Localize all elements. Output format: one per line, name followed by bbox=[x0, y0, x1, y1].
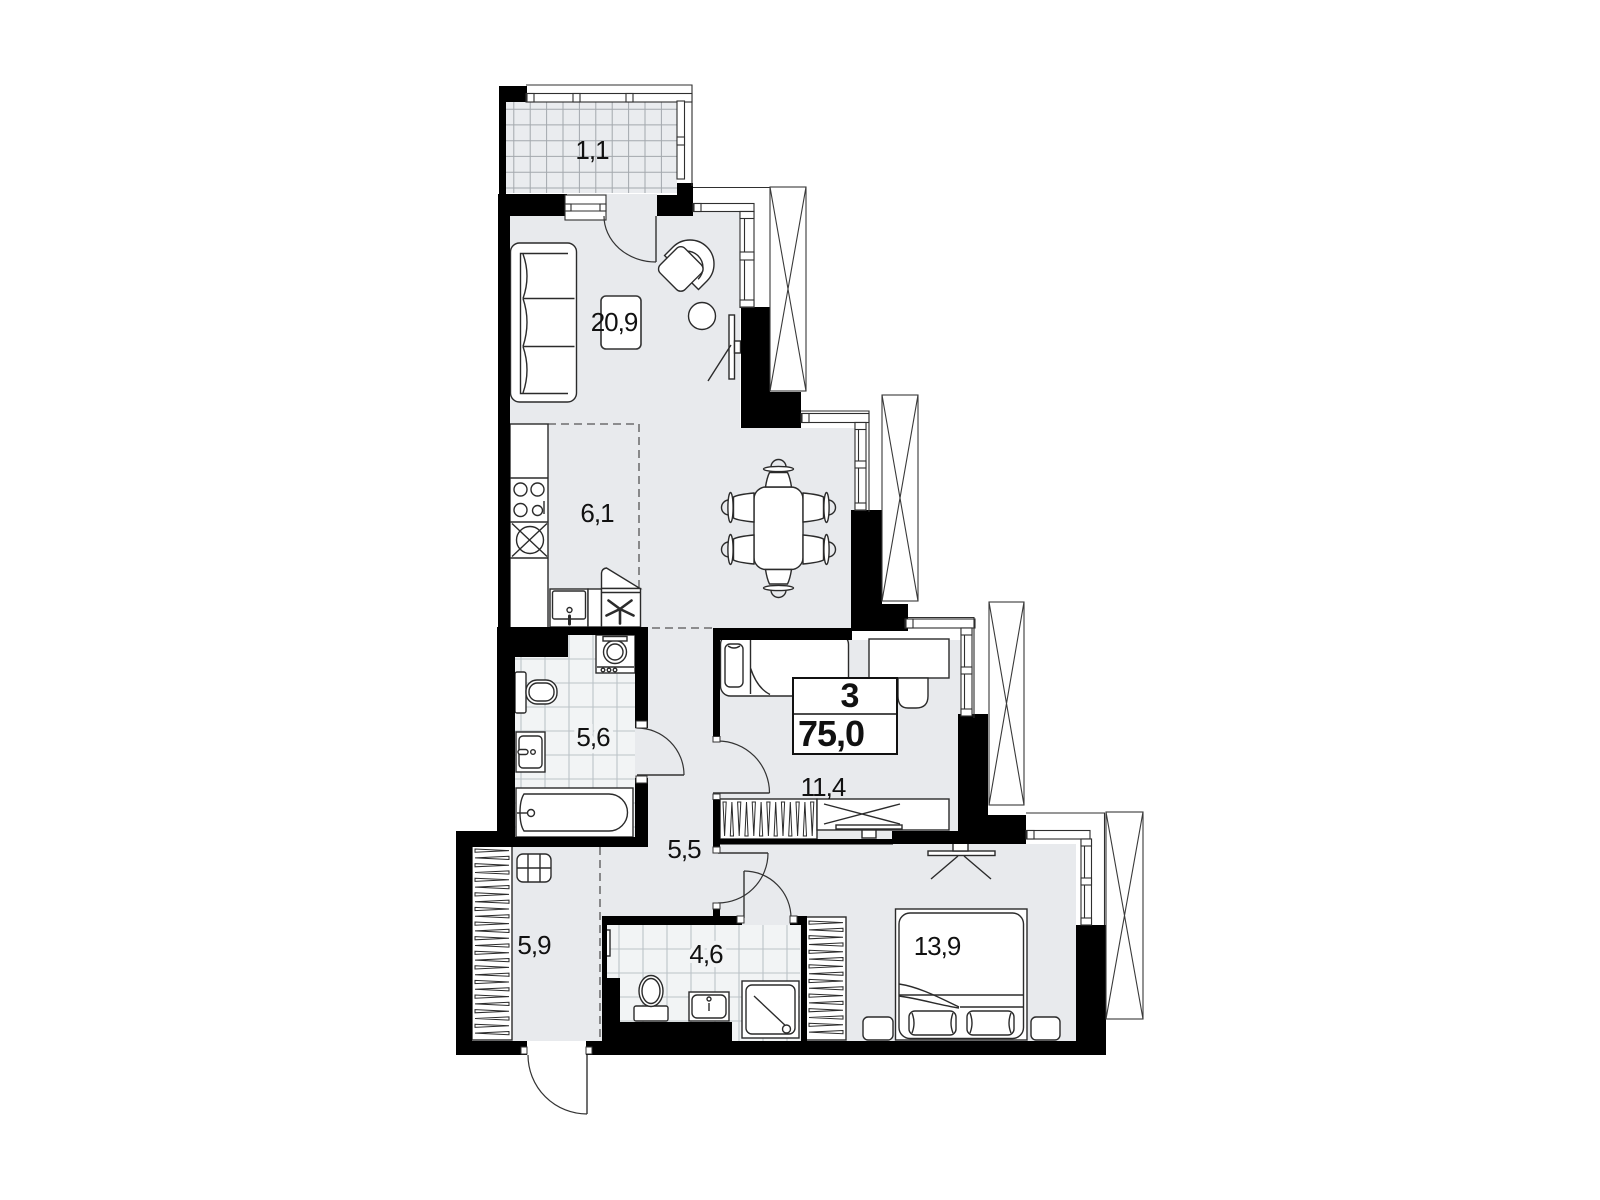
svg-text:4,6: 4,6 bbox=[689, 939, 723, 969]
svg-text:5,9: 5,9 bbox=[517, 930, 551, 960]
svg-text:11,4: 11,4 bbox=[801, 772, 846, 802]
svg-text:75,0: 75,0 bbox=[798, 713, 864, 754]
svg-text:1,1: 1,1 bbox=[575, 135, 609, 165]
svg-text:6,1: 6,1 bbox=[580, 498, 614, 528]
svg-text:5,5: 5,5 bbox=[667, 834, 701, 864]
svg-text:13,9: 13,9 bbox=[914, 931, 961, 961]
svg-text:3: 3 bbox=[841, 677, 860, 715]
svg-text:20,9: 20,9 bbox=[591, 307, 638, 337]
svg-text:5,6: 5,6 bbox=[576, 722, 610, 752]
